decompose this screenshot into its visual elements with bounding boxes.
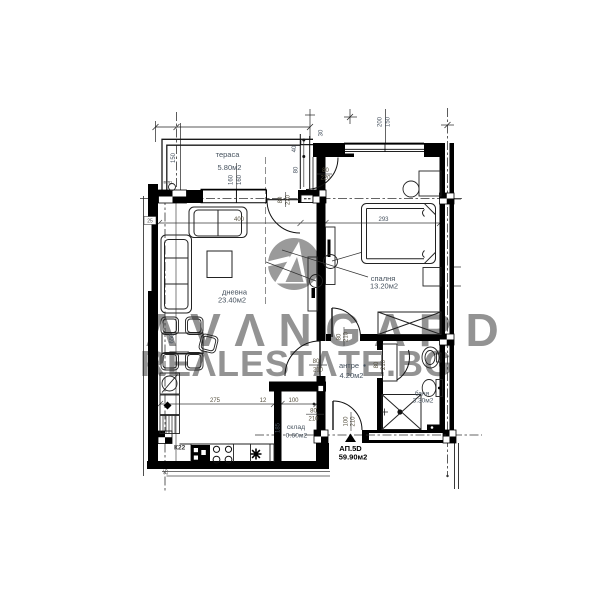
- svg-text:210: 210: [313, 368, 324, 374]
- svg-text:0.60м2: 0.60м2: [286, 433, 308, 440]
- svg-text:275: 275: [210, 398, 221, 404]
- svg-text:4.20м2: 4.20м2: [340, 371, 364, 380]
- svg-text:80: 80: [374, 361, 380, 368]
- svg-text:210: 210: [351, 416, 357, 427]
- svg-text:тераса: тераса: [216, 150, 241, 159]
- svg-text:23.40м2: 23.40м2: [218, 296, 246, 305]
- svg-text:160: 160: [229, 174, 235, 185]
- svg-text:200: 200: [378, 116, 384, 127]
- svg-text:30: 30: [319, 129, 325, 136]
- svg-text:160: 160: [237, 174, 243, 185]
- svg-text:80: 80: [337, 333, 343, 340]
- svg-text:400: 400: [234, 217, 245, 223]
- svg-text:100: 100: [288, 398, 299, 404]
- svg-text:150: 150: [171, 152, 177, 163]
- svg-text:80: 80: [294, 166, 300, 173]
- svg-text:210: 210: [308, 417, 319, 423]
- svg-text:антре: антре: [339, 361, 359, 370]
- svg-text:100: 100: [344, 416, 350, 427]
- svg-text:80: 80: [310, 409, 317, 415]
- svg-text:13.20м2: 13.20м2: [370, 282, 398, 291]
- svg-text:12: 12: [260, 398, 267, 404]
- svg-text:в.тр: в.тр: [164, 180, 173, 185]
- svg-text:150: 150: [386, 116, 392, 127]
- svg-text:3.30м2: 3.30м2: [413, 398, 434, 405]
- svg-text:К22: К22: [174, 445, 186, 452]
- svg-text:59.90м2: 59.90м2: [339, 453, 368, 462]
- svg-text:650: 650: [170, 333, 176, 344]
- svg-text:220: 220: [320, 176, 331, 182]
- svg-text:25: 25: [147, 219, 153, 225]
- svg-text:80: 80: [322, 168, 329, 174]
- svg-text:293: 293: [378, 217, 389, 223]
- svg-text:склад: склад: [287, 424, 305, 431]
- svg-text:210: 210: [381, 359, 387, 370]
- svg-text:5.80м2: 5.80м2: [218, 163, 242, 172]
- svg-text:80: 80: [313, 359, 320, 365]
- svg-text:баня: баня: [415, 390, 430, 398]
- svg-text:80: 80: [278, 196, 284, 203]
- svg-text:40: 40: [292, 145, 298, 152]
- svg-text:220: 220: [286, 194, 292, 205]
- svg-text:REΛLESTΛTE.BG: REΛLESTΛTE.BG: [140, 343, 453, 384]
- svg-text:185: 185: [276, 422, 282, 433]
- svg-text:25: 25: [164, 469, 170, 475]
- svg-text:210: 210: [344, 331, 350, 342]
